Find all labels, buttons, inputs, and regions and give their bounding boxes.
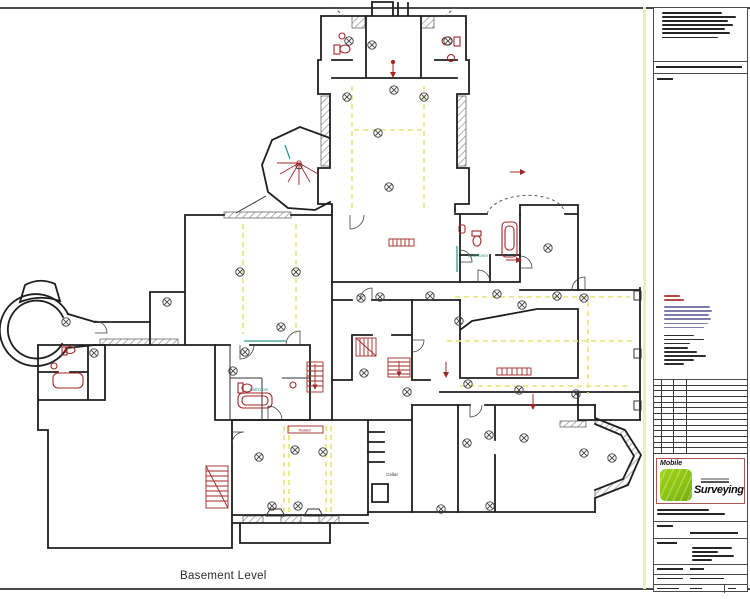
light-symbol — [277, 323, 285, 331]
title-block-footer — [654, 564, 747, 591]
greek-text-line — [664, 327, 704, 329]
light-symbol — [463, 439, 471, 447]
greek-text-line — [662, 16, 736, 18]
light-symbol — [345, 37, 353, 45]
light-symbol — [163, 298, 171, 306]
ceiling-guides — [243, 86, 634, 512]
walls-partitions — [230, 163, 641, 516]
greek-text-line — [664, 359, 694, 361]
greek-text-line — [692, 555, 734, 557]
greek-text-line — [664, 314, 709, 316]
dashed-outline — [333, 7, 565, 214]
greek-text-line — [664, 339, 704, 341]
room-label: Radiator — [299, 429, 313, 433]
revision-row — [654, 448, 747, 454]
greek-text-line — [657, 588, 679, 590]
legend-block — [664, 295, 712, 368]
section-divider — [654, 73, 747, 74]
greek-text-line — [664, 299, 684, 301]
logo-brand-top: Mobile — [660, 460, 682, 467]
light-symbol — [90, 349, 98, 357]
logo-tagline-greek — [701, 481, 729, 483]
doc-label-greek — [657, 525, 673, 527]
greek-text-line — [662, 37, 718, 39]
footer-row — [654, 564, 747, 574]
light-symbol — [403, 388, 411, 396]
title-block: Mobile Surveying™ — [653, 7, 748, 592]
greek-text-line — [664, 306, 710, 308]
light-symbol — [518, 301, 526, 309]
light-symbol — [368, 41, 376, 49]
light-symbol — [520, 434, 528, 442]
level-title: Basement Level — [180, 570, 267, 582]
company-logo: Mobile Surveying™ — [656, 458, 745, 504]
light-symbol — [374, 129, 382, 137]
light-symbol — [294, 502, 302, 510]
footer-divider — [724, 585, 725, 594]
light-symbol — [515, 386, 523, 394]
greek-text-line — [662, 20, 728, 22]
footer-row — [654, 574, 747, 584]
window-hatching — [100, 16, 641, 523]
greek-text-line — [657, 568, 683, 570]
light-symbol — [385, 183, 393, 191]
logo-brand-main-text: Surveying — [694, 484, 744, 496]
greek-text-line — [664, 295, 680, 297]
greek-text-line — [664, 347, 688, 349]
drawing-sheet: BathroomBathroomCellarRadiator Basement … — [0, 0, 750, 599]
section-divider — [654, 61, 747, 62]
title-block-band-line — [656, 66, 742, 68]
light-symbol — [426, 292, 434, 300]
light-symbol — [343, 93, 351, 101]
room-label: Bathroom — [250, 387, 269, 392]
light-symbols — [62, 37, 616, 513]
revision-column-divider — [661, 380, 662, 454]
client-values-greek — [692, 547, 734, 563]
doc-value-greek — [690, 532, 738, 534]
footer-row — [654, 584, 747, 594]
light-symbol — [62, 318, 70, 326]
greek-text-line — [692, 551, 718, 553]
greek-text-line — [664, 351, 697, 353]
greek-text-line — [692, 547, 732, 549]
greek-text-line — [664, 310, 712, 312]
light-symbol — [544, 244, 552, 252]
section-divider — [654, 521, 747, 522]
survey-marks — [244, 145, 457, 341]
client-label-greek — [657, 542, 677, 544]
greek-text-line — [664, 335, 694, 337]
greek-text-line — [728, 588, 736, 590]
floor-plan: BathroomBathroomCellarRadiator Basement … — [0, 0, 750, 599]
logo-brand-main: Surveying™ — [694, 484, 745, 496]
greek-text-line — [662, 28, 725, 30]
light-symbol — [444, 37, 452, 45]
light-symbol — [319, 448, 327, 456]
light-symbol — [241, 348, 249, 356]
light-symbol — [608, 454, 616, 462]
room-label: Cellar — [386, 472, 398, 477]
section-divider — [654, 538, 747, 539]
revision-column-divider — [686, 380, 687, 454]
light-symbol — [291, 446, 299, 454]
light-symbol — [455, 317, 463, 325]
logo-green-square-icon — [660, 469, 692, 501]
room-label: Bathroom — [468, 253, 488, 258]
light-symbol — [580, 449, 588, 457]
greek-text-line — [664, 343, 690, 345]
title-block-tag — [657, 78, 673, 80]
greek-text-line — [664, 363, 684, 365]
greek-text-line — [692, 559, 712, 561]
greek-text-line — [657, 509, 709, 511]
logo-trademark: ™ — [744, 484, 745, 489]
greek-text-line — [664, 318, 711, 320]
greek-text-line — [664, 323, 708, 325]
greek-text-line — [657, 513, 725, 515]
greek-text-line — [690, 588, 702, 590]
light-symbol — [572, 390, 580, 398]
light-symbol — [580, 294, 588, 302]
revision-column-divider — [673, 380, 674, 454]
revision-table — [654, 379, 747, 454]
room-labels: BathroomBathroomCellarRadiator — [250, 253, 488, 477]
light-symbol — [493, 290, 501, 298]
light-symbol — [390, 86, 398, 94]
light-symbol — [486, 502, 494, 510]
light-symbol — [485, 431, 493, 439]
light-symbol — [553, 292, 561, 300]
greek-text-line — [662, 32, 730, 34]
light-symbol — [360, 369, 368, 377]
greek-text-line — [662, 24, 733, 26]
light-symbol — [255, 453, 263, 461]
greek-text-line — [662, 12, 722, 14]
title-block-notes — [662, 12, 744, 41]
greek-text-line — [690, 578, 724, 580]
greek-text-line — [657, 578, 683, 580]
light-symbol — [464, 380, 472, 388]
greek-text-line — [690, 568, 704, 570]
walls-outer — [0, 2, 641, 548]
greek-text-line — [664, 355, 706, 357]
title-block-address — [657, 509, 725, 517]
